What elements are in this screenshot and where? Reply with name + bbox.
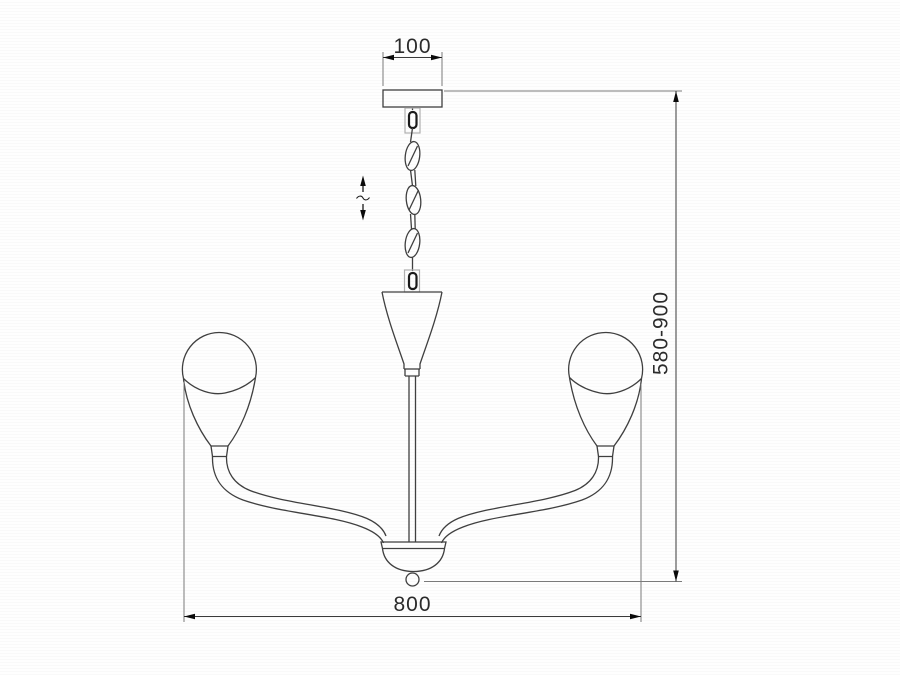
overall-width-label: 800 <box>184 594 641 615</box>
chain-hook-bottom <box>409 273 417 289</box>
suspension-chain <box>404 107 423 292</box>
chandelier-line-art <box>0 0 900 675</box>
shade-opening-edge <box>184 378 256 394</box>
center-stem <box>409 376 416 542</box>
arm-outer-edge <box>212 457 383 544</box>
canopy-width-label: 100 <box>383 36 442 57</box>
hanging-height-label: 580-900 <box>651 291 672 375</box>
height-adjustable-icon <box>357 176 370 221</box>
technical-drawing-canvas: 100 800 580-900 <box>0 0 900 675</box>
ceiling-plate <box>383 90 442 107</box>
finial-ball <box>406 573 419 586</box>
bottom-bowl <box>381 542 446 586</box>
arm-inner-edge <box>226 457 386 537</box>
glass-shade-ball <box>182 332 256 378</box>
center-body <box>382 292 442 542</box>
arm-and-shade <box>182 332 386 543</box>
socket <box>211 446 228 457</box>
arm-and-shade-right <box>439 332 643 543</box>
chain-hook-top <box>409 112 417 128</box>
